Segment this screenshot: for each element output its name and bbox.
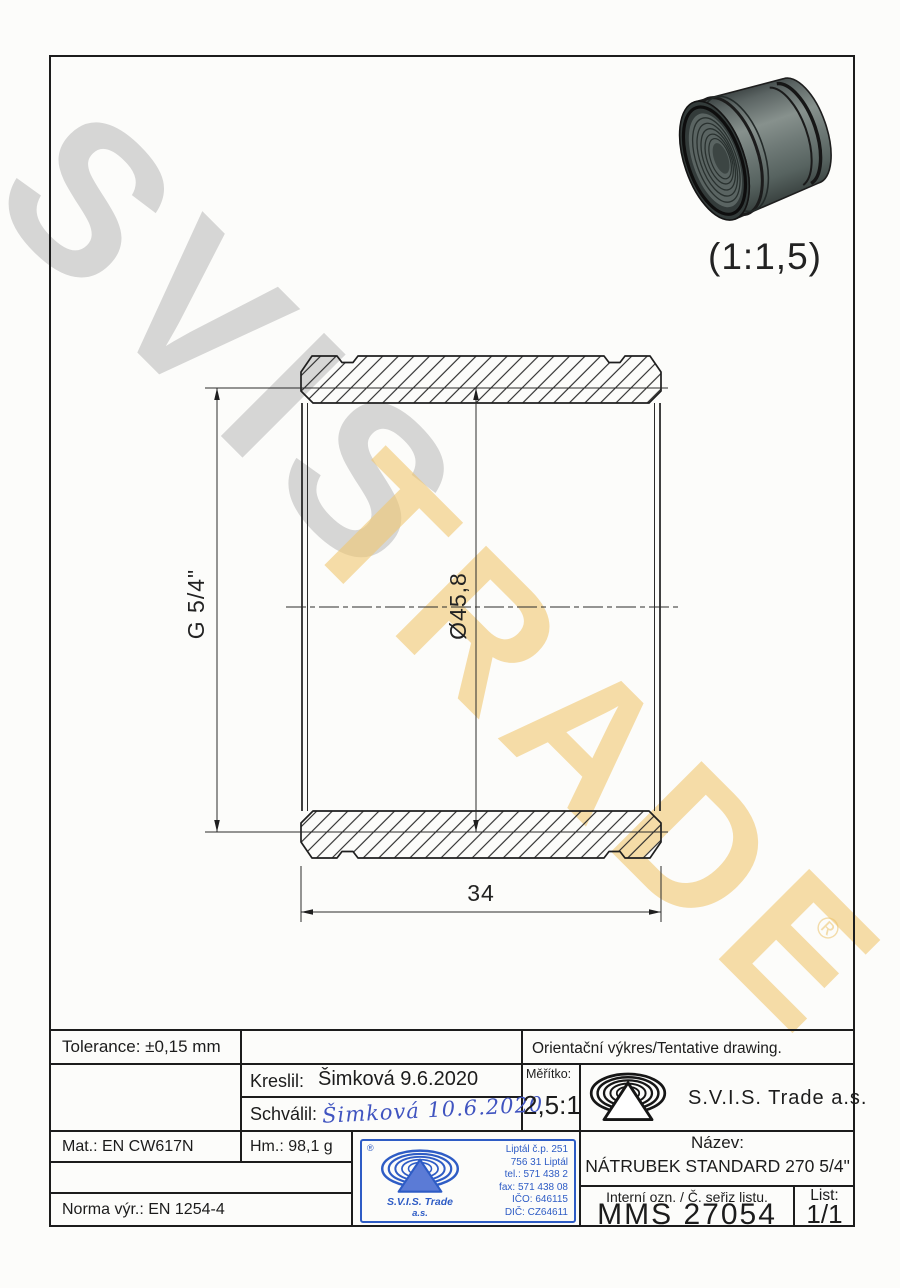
titleblock-line (50, 1192, 352, 1194)
stamp-company-name: S.V.I.S. Trade (374, 1196, 466, 1208)
stamp-address-line: fax: 571 438 08 (458, 1182, 568, 1195)
tolerance-note: Tolerance: ±0,15 mm (62, 1037, 221, 1057)
arrow-up-icon (214, 388, 220, 400)
company-stamp: ® S.V.I.S. Trade a.s. Liptál č.p. 251 75… (360, 1139, 576, 1223)
arrow-right-icon (649, 909, 661, 915)
stamp-registered-icon: ® (367, 1143, 374, 1153)
section-bottom-wall (301, 811, 661, 858)
name-label: Název: (580, 1133, 855, 1153)
arrow-left-icon (301, 909, 313, 915)
stamp-logo-icon (374, 1149, 466, 1195)
dim-label-thread: G 5/4" (183, 544, 211, 664)
stamp-company-suffix: a.s. (374, 1208, 466, 1219)
titleblock-line (50, 1130, 855, 1132)
titleblock-line (240, 1029, 242, 1162)
scale-label: Měřítko: (526, 1067, 571, 1081)
company-logo-icon (588, 1070, 668, 1126)
orientation-note: Orientační výkres/Tentative drawing. (532, 1040, 782, 1058)
dim-label-length: 34 (451, 880, 511, 907)
dim-label-diameter: Ø45,8 (445, 546, 473, 666)
stamp-address-line: tel.: 571 438 2 (458, 1169, 568, 1182)
stamp-address-line: Liptál č.p. 251 (458, 1144, 568, 1157)
norm-value: Norma výr.: EN 1254-4 (62, 1201, 225, 1219)
section-top-wall (301, 356, 661, 403)
drawn-label: Kreslil: (250, 1071, 304, 1092)
material-value: Mat.: EN CW617N (62, 1138, 194, 1156)
mass-value: Hm.: 98,1 g (250, 1138, 333, 1156)
approved-label: Schválil: (250, 1104, 317, 1125)
stamp-address-block: Liptál č.p. 251 756 31 Liptál tel.: 571 … (458, 1144, 568, 1219)
titleblock-line (50, 1161, 352, 1163)
arrow-down-icon (214, 820, 220, 832)
scale-value: 2,5:1 (523, 1090, 581, 1121)
stamp-address-line: 756 31 Liptál (458, 1157, 568, 1170)
sheet-value: 1/1 (794, 1199, 855, 1230)
stamp-address-line: DIČ: CZ64611 (458, 1207, 568, 1220)
titleblock-line (351, 1130, 353, 1227)
internal-code-value: MMS 27054 (580, 1198, 794, 1232)
name-value: NÁTRUBEK STANDARD 270 5/4" (580, 1156, 855, 1177)
drawn-value: Šimková 9.6.2020 (318, 1068, 478, 1091)
titleblock-line (50, 1063, 855, 1065)
drawing-sheet: SVIS TRADE ® (0, 0, 900, 1288)
titleblock-line (50, 1029, 855, 1031)
company-name: S.V.I.S. Trade a.s. (688, 1087, 867, 1110)
stamp-address-line: IČO: 646115 (458, 1194, 568, 1207)
